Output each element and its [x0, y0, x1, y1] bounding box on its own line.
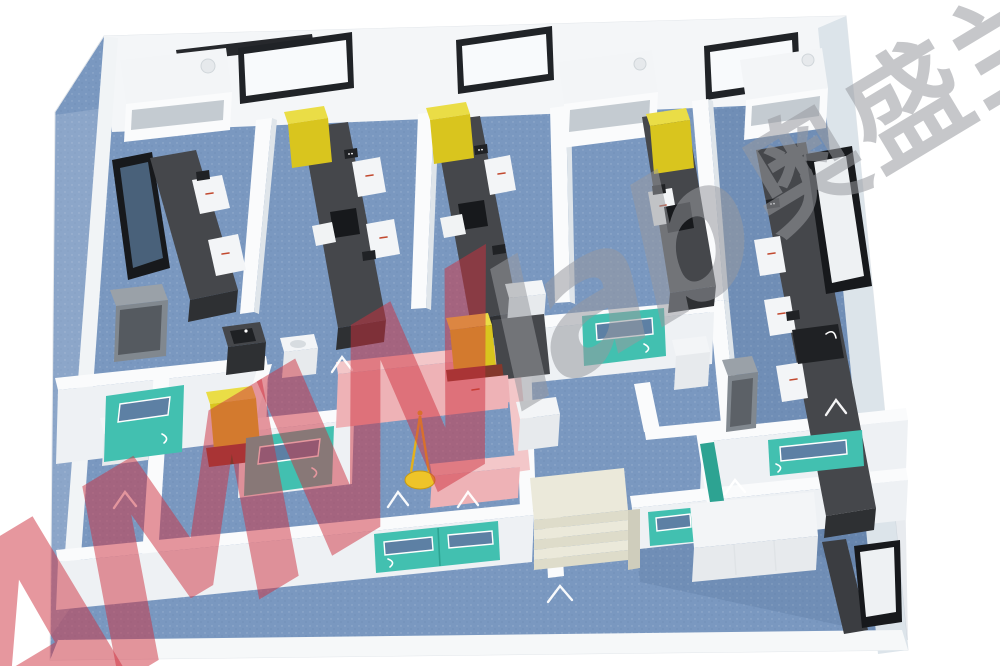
- sink: [792, 324, 844, 364]
- hood-duct: [201, 59, 215, 73]
- fume-hood: [740, 48, 828, 140]
- basin: [290, 340, 306, 348]
- staircase: [530, 468, 640, 570]
- fume-hood: [558, 50, 658, 148]
- basin-cabinet: [280, 334, 318, 378]
- hood-duct: [802, 54, 814, 66]
- stand-base: [405, 471, 435, 489]
- teal-door: [582, 308, 666, 366]
- monitor: [330, 208, 360, 238]
- yellow-wall-cabinet: [646, 108, 694, 174]
- keyboard: [440, 214, 466, 238]
- sink-counter: [222, 322, 266, 375]
- lab-3d-floorplan-render: AMW lab 奥盛兰: [0, 0, 1000, 666]
- hood-duct: [634, 58, 646, 70]
- metal-cabinet: [722, 356, 758, 432]
- pass-through-cabinet: [690, 492, 818, 582]
- under-bench-cabinet: [352, 157, 386, 197]
- keyboard: [312, 222, 336, 246]
- floorplan-scene: [0, 0, 1000, 666]
- fume-hood: [120, 48, 232, 142]
- teal-door: [244, 426, 334, 496]
- teal-door: [104, 385, 184, 462]
- monitor: [664, 202, 694, 233]
- faucet: [244, 329, 247, 332]
- yellow-wall-cabinet: [426, 102, 474, 164]
- basin-cabinet: [672, 336, 710, 390]
- yellow-wall-cabinet: [284, 106, 332, 168]
- basin-cabinet: [516, 397, 560, 451]
- metal-cabinet: [110, 284, 168, 362]
